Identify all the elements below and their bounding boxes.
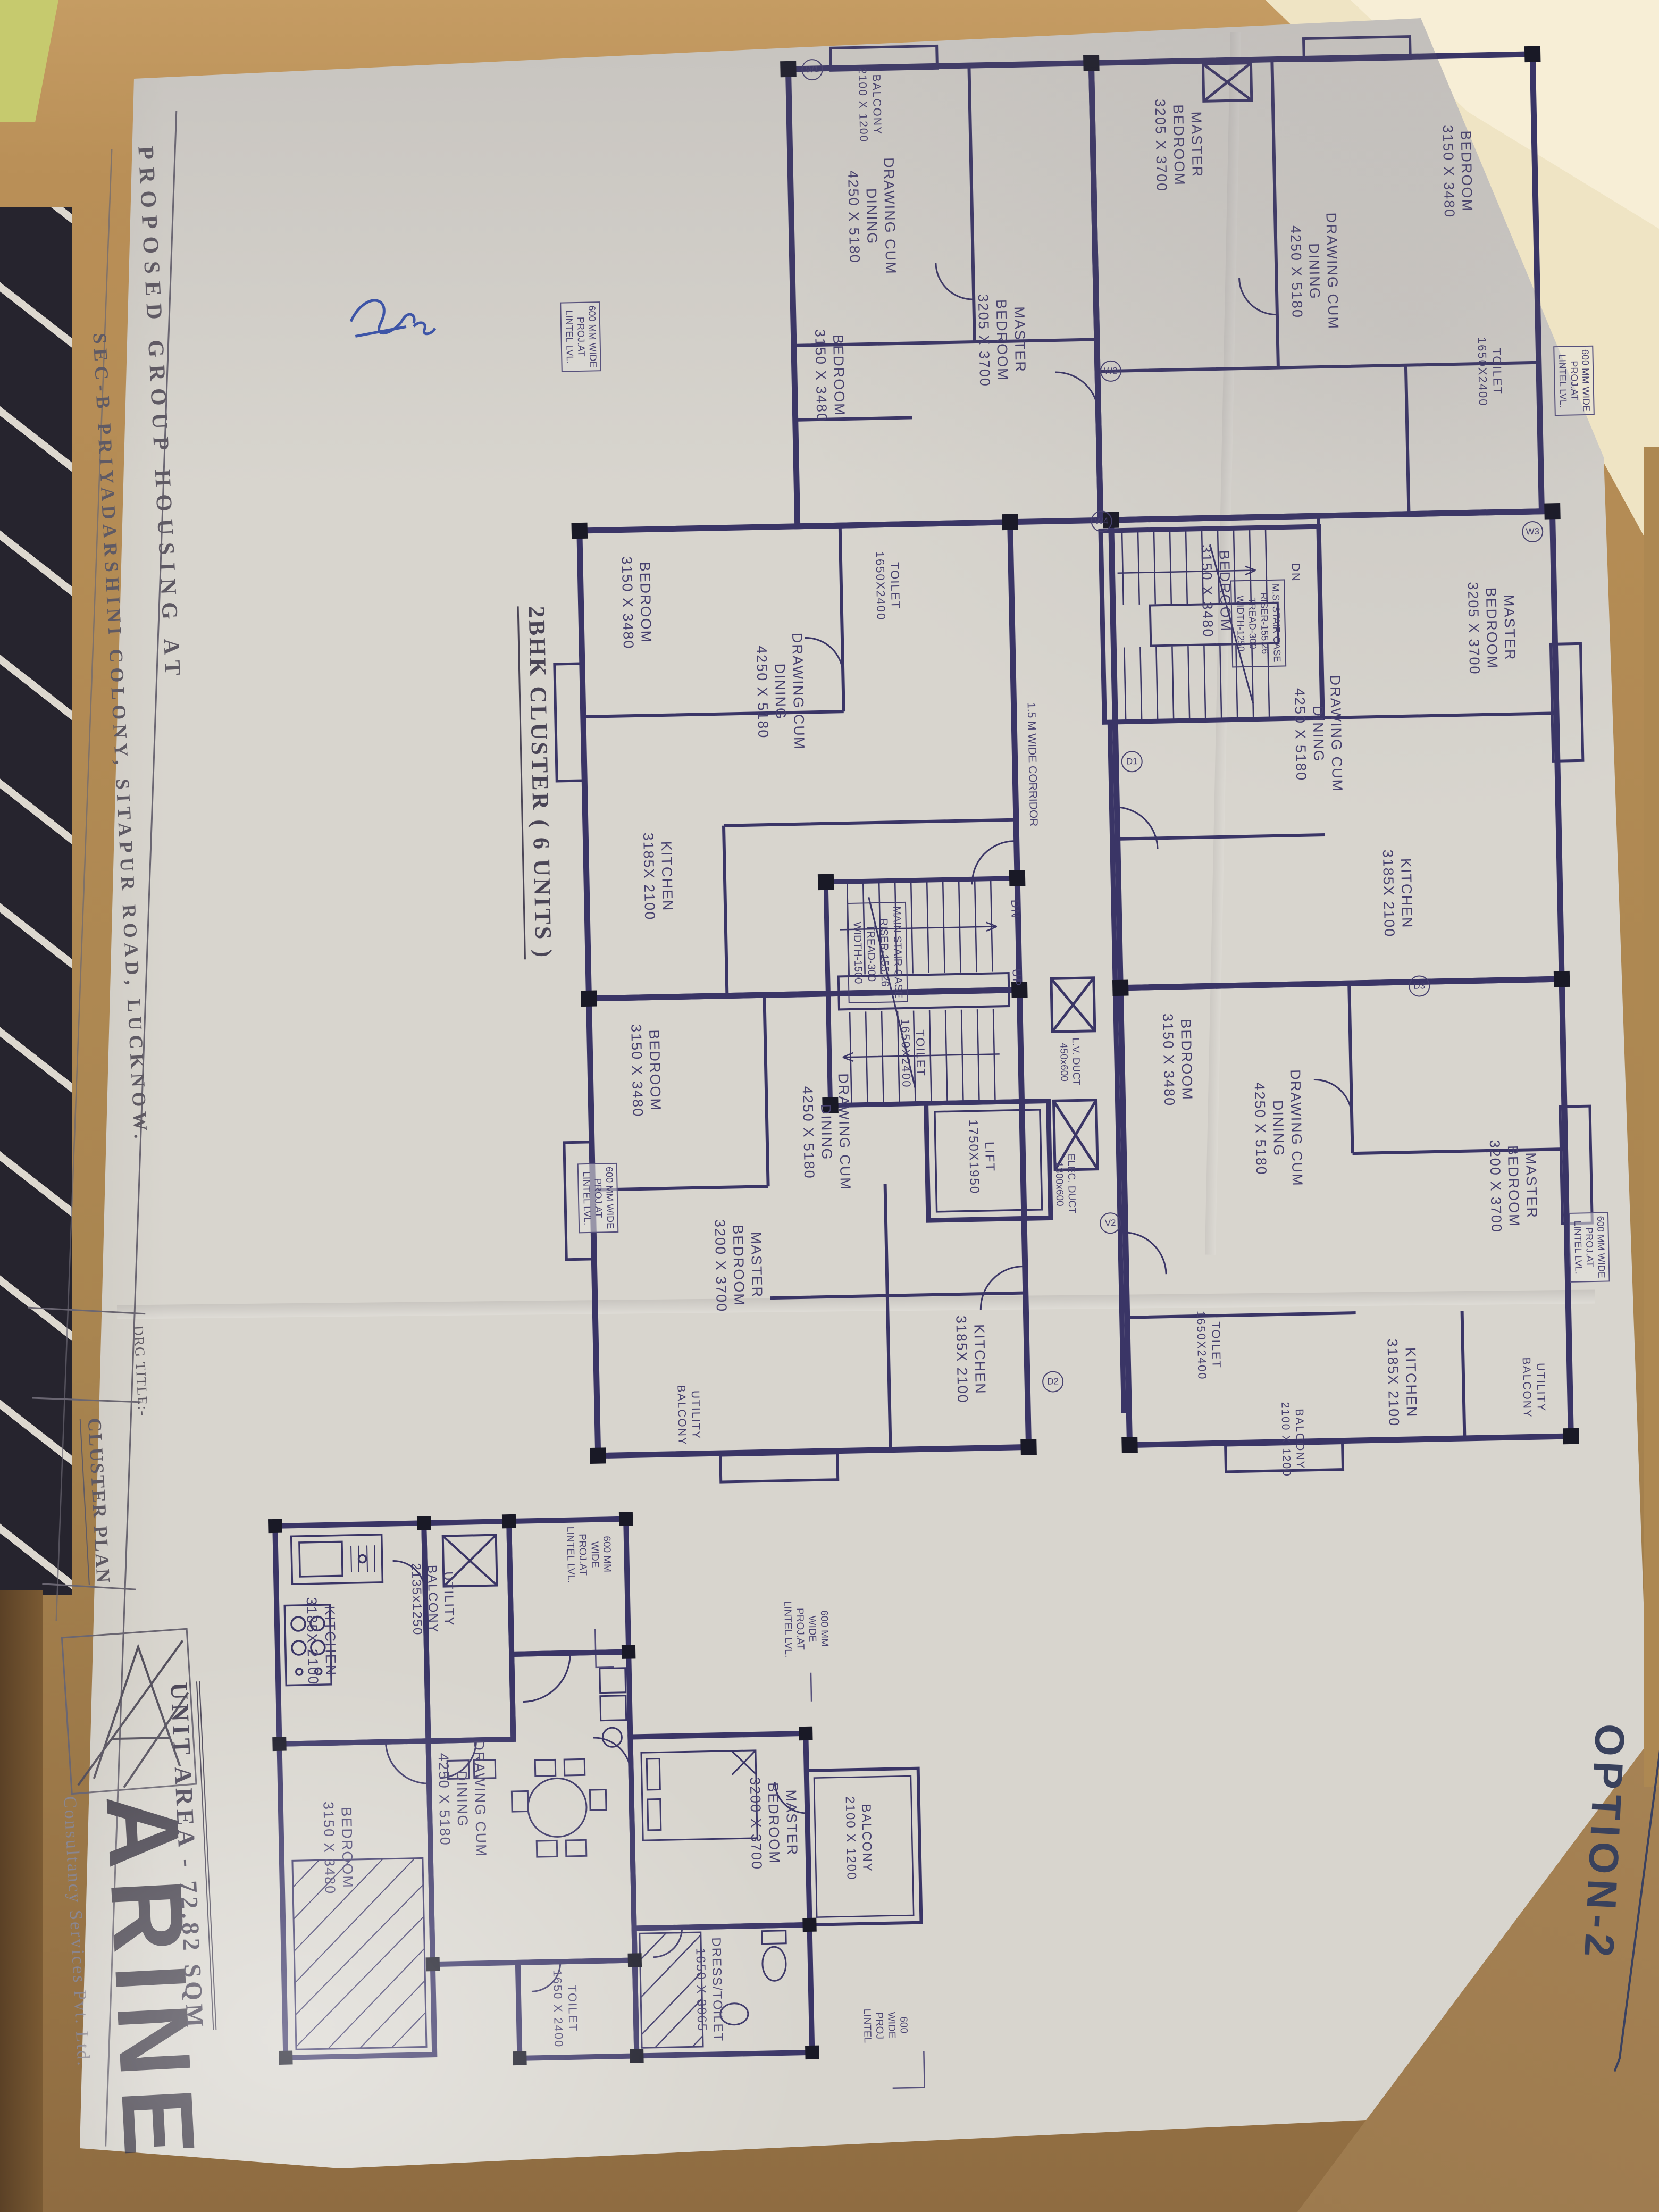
main-staircase-label: MAIN STAIR CASE RISER-155.26 TREAD-300 W…: [847, 902, 908, 1003]
room-label-9: KITCHEN 3185X 2100: [639, 832, 676, 921]
lintel-note-2: 600 MM WIDE PROJ.AT LINTEL LVL.: [1553, 346, 1594, 416]
room-label-19: MASTER BEDROOM 3200 X 3700: [1485, 1139, 1541, 1233]
lv-duct-label: L.V. DUCT 450x600: [1057, 1037, 1082, 1086]
unit-column-blocks: [268, 1509, 819, 2070]
room-label-22: UTILITY BALCONY: [1519, 1357, 1548, 1418]
room-label-6: TOILET 1650X2400: [1474, 337, 1505, 407]
room-label-18: UTILITY BALCONY: [674, 1385, 703, 1446]
room-label-24: BEDROOM 3150 X 3480: [1158, 1013, 1196, 1107]
room-label-11: BEDROOM 3150 X 3480: [1197, 544, 1235, 638]
stair-dn-label: DN: [1008, 899, 1023, 918]
room-label-10: TOILET 1650X2400: [873, 551, 903, 621]
unit-bedroom-label: BEDROOM 3150 X 3480: [319, 1801, 357, 1895]
room-label-8: DRAWING CUM DINING 4250 X 5180: [752, 633, 808, 751]
photo-of-floor-plan-sheet: PROPOSED GROUP HOUSING AT SEC-B PRIYADAR…: [0, 0, 1659, 2212]
room-label-28: TOILET 1650X2400: [1193, 1310, 1224, 1380]
room-label-16: DRAWING CUM DINING 4250 X 5180: [798, 1073, 854, 1191]
unit-dress-toilet-label: DRESS/TOILET 1650 X 3065: [692, 1937, 726, 2042]
balcony-projections: [542, 33, 1597, 1485]
signature-icon: [350, 299, 435, 337]
room-label-27: TOILET 1650X2400: [898, 1018, 928, 1088]
room-label-3: MASTER BEDROOM 3205 X 3700: [1151, 98, 1206, 192]
room-label-17: KITCHEN 3185X 2100: [952, 1315, 990, 1404]
sofa-icon: [600, 1668, 627, 1747]
unit-toilet-label: TOILET 1650 X 2400: [550, 1970, 581, 2048]
corridor-walls: [1010, 520, 1124, 1415]
room-label-0: DRAWING CUM DINING 4250 X 5180: [843, 157, 900, 275]
room-label-26: BALCONY 2100 X 1200: [1278, 1402, 1307, 1477]
lintel-note-1: 600 MM WIDE PROJ.AT LINTEL LVL.: [560, 301, 601, 372]
fire-stair-dn-label: DN: [1288, 563, 1303, 582]
bed-hatch-icon: [292, 1858, 426, 2049]
lift-label: LIFT 1750X1950: [965, 1119, 998, 1195]
unit-master-label: MASTER BEDROOM 3200 X 3700: [745, 1776, 801, 1870]
room-label-21: KITCHEN 3185X 2100: [1383, 1338, 1421, 1427]
corridor-label: 1.5 M WIDE CORRIDOR: [1024, 702, 1040, 827]
wc-icon: [762, 1931, 787, 1981]
room-label-13: MASTER BEDROOM 3205 X 3700: [1463, 581, 1519, 675]
room-label-5: BEDROOM 3150 X 3480: [1438, 124, 1476, 218]
stair-up-label: UP: [1010, 968, 1024, 987]
cluster-plan-svg: [533, 32, 1604, 1520]
unit-drawing-label: DRAWING CUM DINING 4250 X 5180: [433, 1740, 490, 1858]
fire-staircase-label: M.S. STAIR CASE RISER-155.26 TREAD-300 W…: [1230, 579, 1286, 667]
kitchen-sink-icon: [291, 1535, 383, 1584]
room-label-20: DRAWING CUM DINING 4250 X 5180: [1250, 1069, 1306, 1187]
room-label-23: BEDROOM 3150 X 3480: [626, 1024, 664, 1117]
room-label-15: MASTER BEDROOM 3200 X 3700: [710, 1218, 766, 1312]
lintel-note-4: 600 MM WIDE PROJ.AT LINTEL LVL.: [1569, 1212, 1610, 1283]
unit-proj-lintel-note: 600 WIDE PROJ LINTEL: [860, 2008, 909, 2043]
elec-duct-label: ELEC. DUCT 1300x600: [1052, 1154, 1078, 1214]
unit-lintel-note-2: 600 MM WIDE PROJ.AT LINTEL LVL.: [781, 1600, 830, 1657]
room-label-14: KITCHEN 3185X 2100: [1378, 849, 1416, 938]
master-bed-icon: [641, 1750, 757, 1840]
unit-utility-label: UTILITY BALCONY 2135x1250: [408, 1562, 457, 1636]
lintel-note-3: 600 MM WIDE PROJ.AT LINTEL LVL.: [577, 1163, 618, 1234]
unit-walls: [275, 1515, 812, 2063]
room-label-12: DRAWING CUM DINING 4250 X 5180: [1290, 675, 1346, 793]
room-label-7: BEDROOM 3150 X 3480: [617, 556, 655, 649]
room-label-1: MASTER BEDROOM 3205 X 3700: [974, 293, 1029, 387]
room-label-2: BEDROOM 3150 X 3480: [810, 329, 848, 422]
room-label-25: BALCONY 2100 X 1200: [854, 67, 884, 143]
unit-balcony-label: BALCONY 2100 X 1200: [842, 1796, 875, 1880]
unit-kitchen-label: KITCHEN 3185X 2100: [302, 1597, 340, 1686]
room-label-4: DRAWING CUM DINING 4250 X 5180: [1286, 212, 1342, 330]
unit-lintel-note-1: 600 MM WIDE PROJ.AT LINTEL LVL.: [563, 1526, 613, 1583]
drawing-content: PROPOSED GROUP HOUSING AT SEC-B PRIYADAR…: [0, 0, 1659, 2212]
